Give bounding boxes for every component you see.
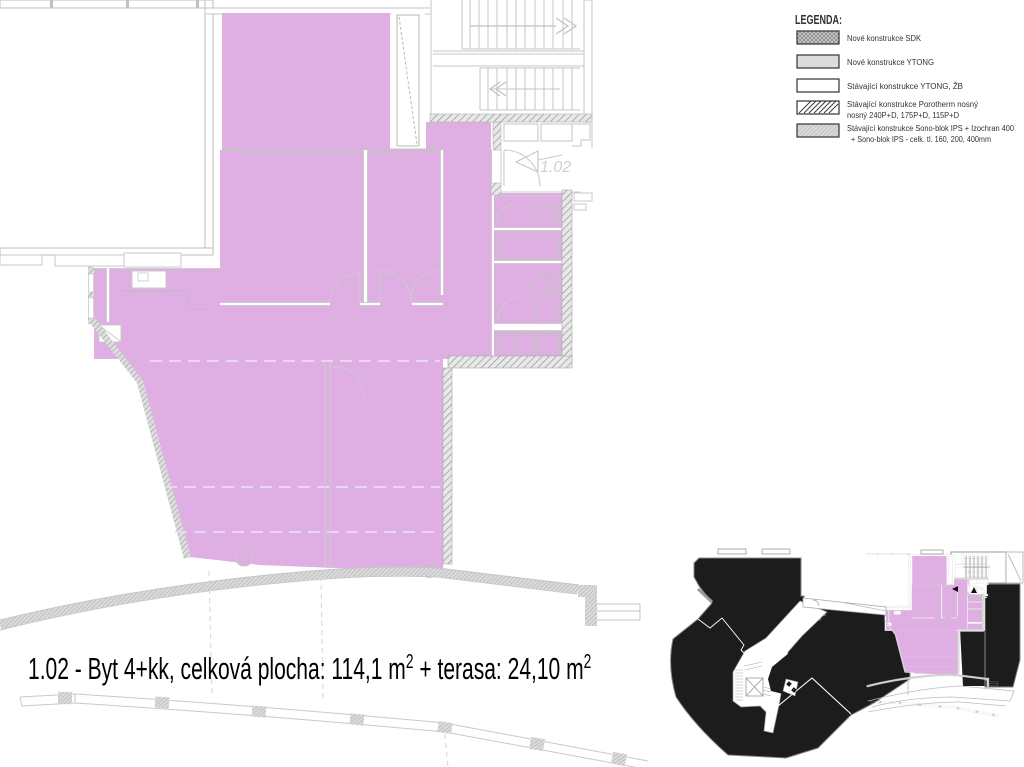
svg-text:Nové konstrukce SDK: Nové konstrukce SDK (847, 34, 922, 43)
svg-text:nosný 240P+D, 175P+D, 115P+D: nosný 240P+D, 175P+D, 115P+D (847, 111, 959, 120)
svg-text:+ Sono-blok IPS - celk. tl. 16: + Sono-blok IPS - celk. tl. 160, 200, 40… (851, 135, 991, 144)
svg-text:LEGENDA:: LEGENDA: (795, 13, 842, 27)
svg-text:Stávající konstrukce Sono-blok: Stávající konstrukce Sono-blok IPS + Izo… (847, 124, 1015, 133)
svg-text:Nové konstrukce YTONG: Nové konstrukce YTONG (847, 58, 934, 67)
svg-text:1.02 - Byt 4+kk, celková ploch: 1.02 - Byt 4+kk, celková plocha: 114,1 m… (28, 649, 591, 686)
svg-text:Stávající konstrukce Porotherm: Stávající konstrukce Porotherm nosný (847, 100, 978, 109)
svg-text:Stávající konstrukce YTONG, ŽB: Stávající konstrukce YTONG, ŽB (847, 82, 963, 91)
svg-text:1.02: 1.02 (540, 159, 571, 176)
